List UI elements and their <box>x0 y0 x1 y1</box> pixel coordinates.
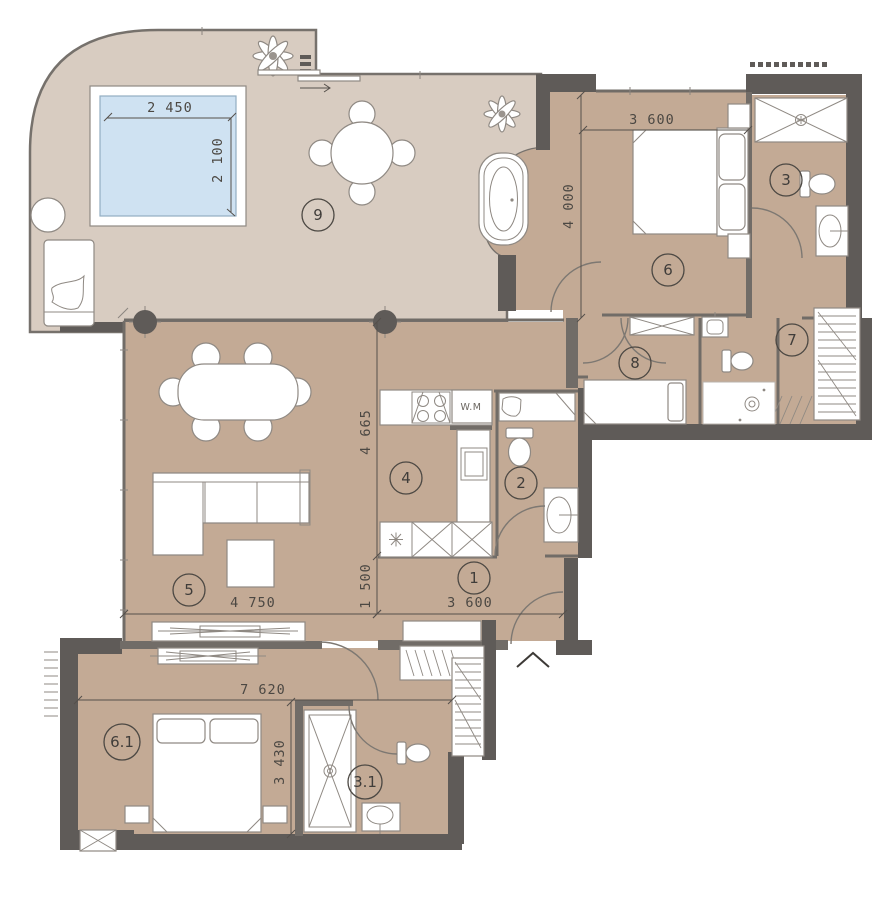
dresser <box>150 648 266 664</box>
dim-kitchen-zone-depth: 4 665 <box>358 409 374 455</box>
washing-machine: W.M <box>452 390 492 423</box>
wall-suite-bottom <box>578 424 872 440</box>
room-label: 3.1 <box>353 773 377 791</box>
wall-bath3-top <box>746 74 862 94</box>
wall-suite-leg <box>536 92 550 150</box>
wall-suite-topleft <box>536 74 596 92</box>
wall-lower-right <box>448 752 464 844</box>
bathtub <box>479 153 528 245</box>
bed-second <box>153 714 261 832</box>
side-table <box>31 198 65 232</box>
wall-lower-left <box>60 648 78 846</box>
dim-lower-unit-width: 7 620 <box>240 682 286 698</box>
dim-lower-unit-depth: 3 430 <box>272 739 288 785</box>
bed-single <box>584 380 686 424</box>
room-label: 7 <box>787 331 797 349</box>
sink <box>544 488 578 542</box>
wall-lower-bottom2 <box>120 834 462 850</box>
vent-grille-icon <box>750 62 827 67</box>
room-label: 8 <box>630 354 640 372</box>
room-label: 2 <box>516 474 526 492</box>
dim-hallway-width: 3 600 <box>447 595 493 611</box>
dim-pool-depth: 2 100 <box>210 137 226 183</box>
nightstand <box>125 806 149 823</box>
plant-icon <box>484 96 520 132</box>
floor-plan-canvas: W.M <box>0 0 885 899</box>
wall-hall-right <box>564 558 578 642</box>
dim-hall-zone-depth: 1 500 <box>358 563 374 609</box>
room-label: 1 <box>469 569 479 587</box>
room-label: 9 <box>313 206 323 224</box>
dim-bedroom-master-width: 3 600 <box>629 112 675 128</box>
toilet <box>397 742 430 764</box>
floor-plan-drawing: W.M <box>0 0 885 899</box>
bath-bench <box>499 393 575 421</box>
wall-31-top <box>295 700 353 706</box>
wall-room8-left <box>566 318 578 388</box>
kitchen-counter-right <box>457 430 490 525</box>
sink <box>362 803 400 834</box>
kitchen-sink-icon <box>389 533 403 547</box>
entrance-chevron-icon <box>517 653 549 667</box>
room-label: 5 <box>184 581 194 599</box>
railing-icon <box>44 652 58 716</box>
closet-rail <box>814 308 860 420</box>
shower-floor <box>703 382 775 424</box>
wall-entry-corner <box>556 640 592 655</box>
bed-master <box>633 128 748 236</box>
nightstand <box>263 806 287 823</box>
room-label: 6.1 <box>110 733 134 751</box>
toilet <box>506 428 533 466</box>
tv-console <box>152 622 305 641</box>
dim-bedroom-master-depth: 4 000 <box>561 183 577 229</box>
coffee-table <box>227 540 274 587</box>
room-label: 4 <box>401 469 411 487</box>
hall-cabinet <box>403 621 481 641</box>
room-label: 3 <box>781 171 791 189</box>
sink <box>816 206 848 256</box>
dim-living-width: 4 750 <box>230 595 276 611</box>
toilet <box>722 350 753 372</box>
lounge-chair <box>44 240 94 326</box>
nightstand <box>728 104 750 128</box>
wall-61-31-divider <box>295 702 303 836</box>
room-label: 6 <box>663 261 673 279</box>
wall-alcove-stub <box>498 255 516 311</box>
duct-shaft <box>80 830 116 851</box>
cabinet-x <box>630 317 694 335</box>
washing-machine-label: W.M <box>460 402 481 413</box>
shower-second <box>304 710 356 832</box>
shower-master <box>755 98 847 142</box>
dim-pool-width: 2 450 <box>147 100 193 116</box>
nightstand <box>728 234 750 258</box>
